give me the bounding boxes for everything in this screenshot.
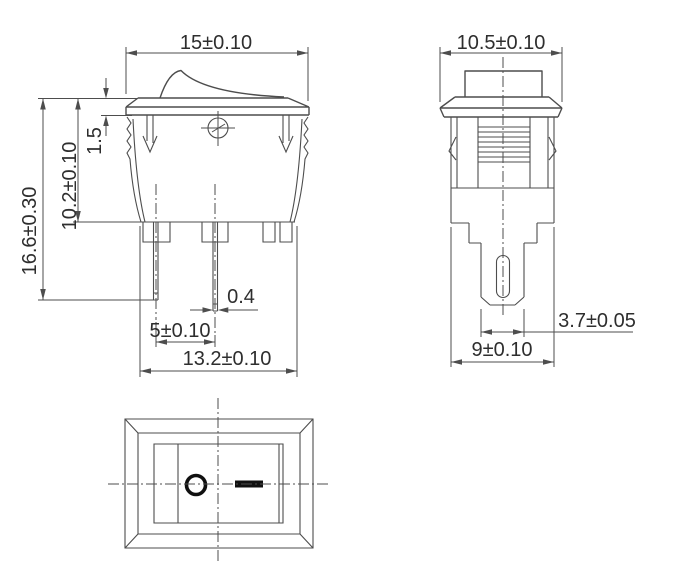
dim-text-front-body-height: 10.2±0.10 — [59, 142, 81, 231]
front-view: 15±0.10 16.6±0.30 10.2±0.10 1.5 — [19, 32, 309, 377]
dim-text-front-terminal-pitch: 5±0.10 — [149, 320, 210, 342]
front-terminal-pins — [154, 222, 218, 311]
drawing-sheet: 15±0.10 16.6±0.30 10.2±0.10 1.5 — [0, 0, 690, 580]
dim-front-terminal-thickness: 0.4 — [190, 286, 258, 313]
dim-side-terminal-width: 3.7±0.05 — [481, 309, 636, 337]
dim-front-body-width: 13.2±0.10 — [140, 226, 297, 377]
side-latch-ribs — [478, 127, 530, 162]
dim-text-side-overall-depth: 10.5±0.10 — [457, 32, 546, 54]
side-body-outline — [449, 117, 556, 223]
dim-front-terminal-pitch: 5±0.10 — [149, 320, 215, 347]
dim-text-front-overall-width: 15±0.10 — [180, 32, 252, 54]
dim-text-front-terminal-thickness: 0.4 — [227, 286, 255, 308]
rocker-switch-technical-drawing: 15±0.10 16.6±0.30 10.2±0.10 1.5 — [0, 0, 690, 580]
front-rocker-actuator — [160, 71, 284, 99]
dim-text-side-body-depth: 9±0.10 — [471, 339, 532, 361]
side-flange — [440, 97, 562, 117]
bottomview-centerlines — [108, 398, 328, 562]
bottom-view — [108, 398, 328, 562]
dim-front-flange-thickness: 1.5 — [84, 78, 132, 155]
dim-text-side-terminal-width: 3.7±0.05 — [558, 310, 636, 332]
dim-text-front-body-width: 13.2±0.10 — [183, 348, 272, 370]
dim-side-overall-depth: 10.5±0.10 — [440, 32, 562, 102]
side-view: 10.5±0.10 3.7±0.05 9±0.10 — [440, 32, 636, 367]
front-pivot-crosshair-icon — [201, 111, 235, 146]
dim-front-body-height: 10.2±0.10 — [59, 99, 141, 231]
dim-text-front-overall-height: 16.6±0.30 — [19, 187, 41, 276]
dim-text-front-flange-thickness: 1.5 — [84, 127, 106, 155]
dim-front-overall-width: 15±0.10 — [126, 32, 308, 101]
off-symbol-icon — [187, 476, 206, 495]
